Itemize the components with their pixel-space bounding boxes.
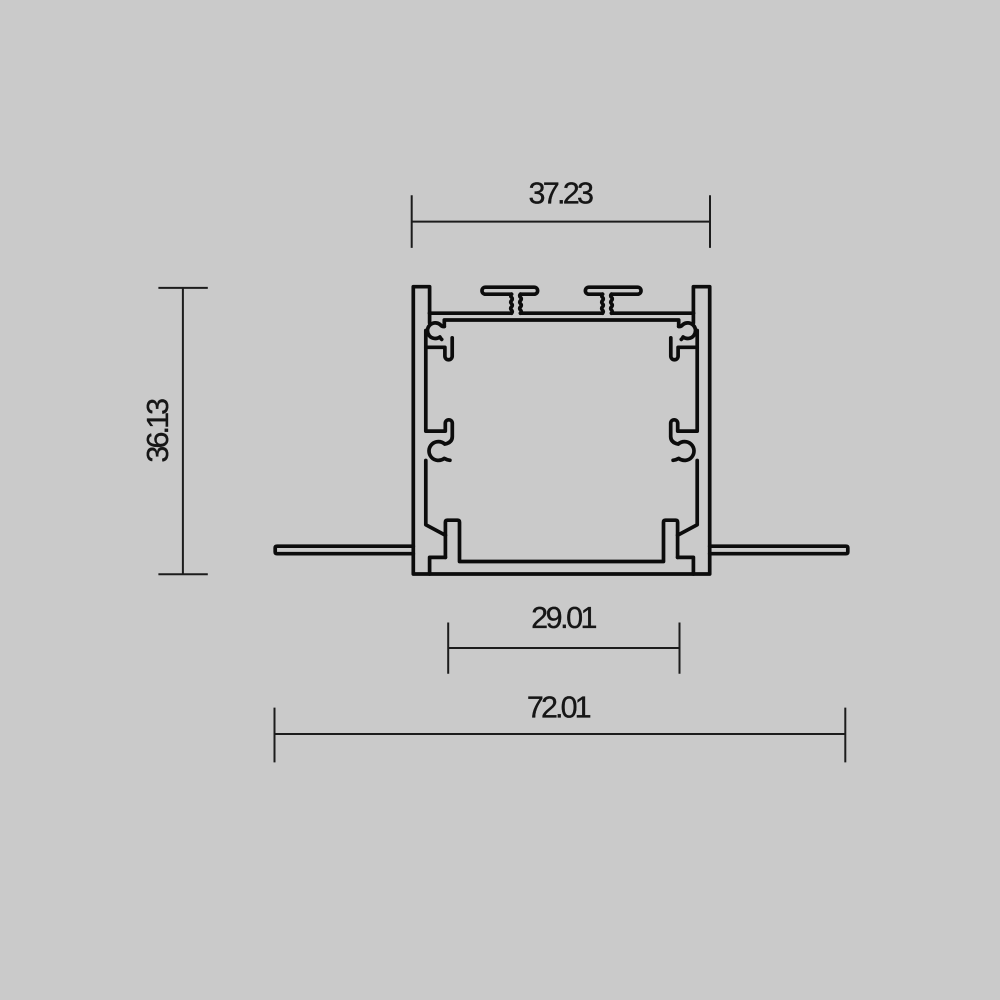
svg-text:29.01: 29.01 bbox=[531, 601, 596, 635]
svg-text:37.23: 37.23 bbox=[528, 177, 593, 211]
svg-text:36.13: 36.13 bbox=[141, 399, 175, 463]
svg-text:72.01: 72.01 bbox=[527, 690, 591, 724]
